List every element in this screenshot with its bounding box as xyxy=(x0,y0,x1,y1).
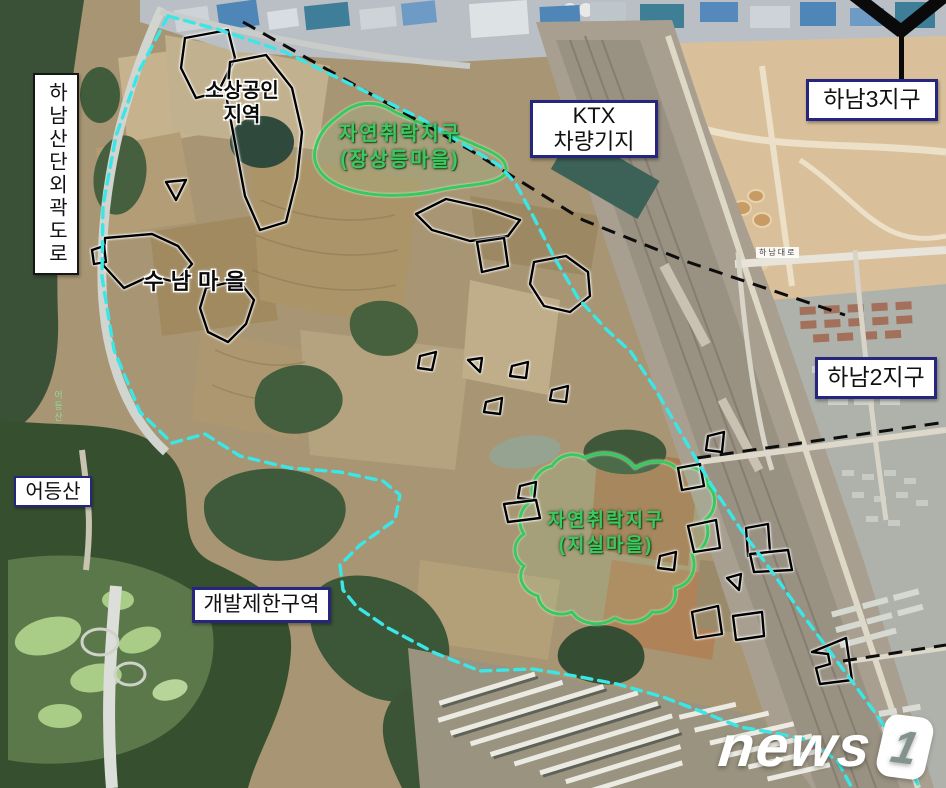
label-small-business-area: 소상공인지역 xyxy=(188,80,296,126)
label-greenbelt: 개발제한구역 xyxy=(192,587,331,623)
zone-jangsangdeung-line2: (장상등마을) xyxy=(340,147,459,173)
label-ring-road: 하남산단외곽도로 xyxy=(33,73,79,275)
label-small-business-line2: 지역 xyxy=(224,103,261,127)
ktx-line1: KTX xyxy=(573,103,616,129)
label-hanam2-district: 하남2지구 xyxy=(815,357,937,399)
label-sunam-village: 수남마을 xyxy=(130,268,266,296)
news1-watermark: news 1 xyxy=(715,713,933,780)
satellite-map: 하남산단외곽도로 소상공인지역 자연취락지구(장상등마을) KTX차량기지 하남… xyxy=(0,0,946,788)
watermark-word: news xyxy=(715,713,875,780)
watermark-digit: 1 xyxy=(873,713,936,781)
label-zone-jangsangdeung: 자연취락지구(장상등마을) xyxy=(312,122,488,172)
road-label-hanamdaero: 하남대로 xyxy=(756,247,799,258)
label-zone-jisil: 자연취락지구(지실마을) xyxy=(528,510,684,558)
label-hanam3-district: 하남3지구 xyxy=(806,79,938,121)
zone-jangsangdeung-line1: 자연취락지구 xyxy=(339,121,461,147)
label-small-business-line1: 소상공인 xyxy=(205,79,279,103)
map-artwork xyxy=(0,0,946,788)
label-eodeungsan: 어등산 xyxy=(14,476,92,507)
ktx-line2: 차량기지 xyxy=(554,129,635,155)
zone-jisil-line2: (지실마을) xyxy=(559,534,654,559)
label-ktx-depot: KTX차량기지 xyxy=(530,100,658,158)
mountain-label-small: 어등산 xyxy=(52,390,65,444)
zone-jisil-line1: 자연취락지구 xyxy=(548,509,665,534)
